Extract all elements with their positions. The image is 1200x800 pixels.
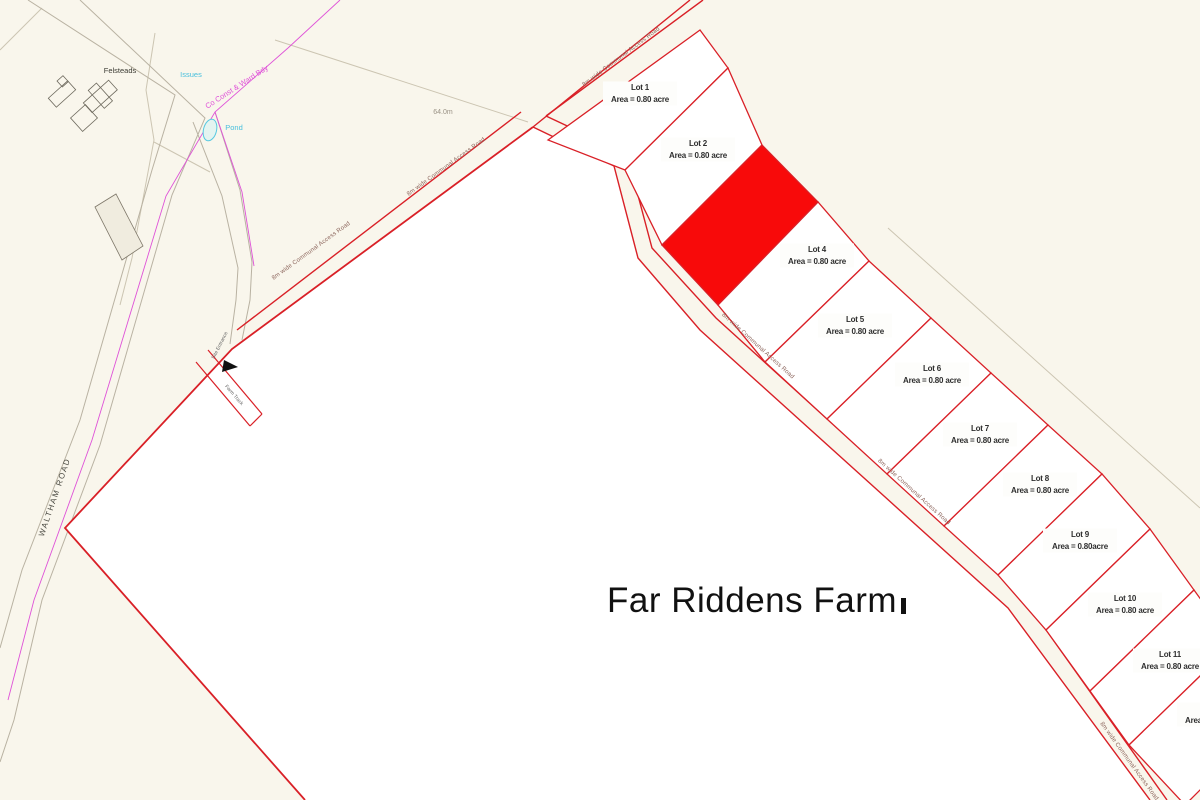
spot-height-label: 64.0m [433, 109, 453, 116]
lot-4-label: Lot 4 Area = 0.80 acre [780, 244, 854, 268]
lot-area: Area = 0.80 acre [1185, 716, 1200, 725]
lot-area: Area = 0.80 acre [951, 436, 1010, 445]
lot-area: Area = 0.80 acre [788, 257, 847, 266]
lot-name: Lot 10 [1114, 594, 1137, 603]
farm-title-label: Far Riddens Farm [607, 581, 897, 620]
lot-7-label: Lot 7 Area = 0.80 acre [943, 423, 1017, 447]
lot-name: Lot 7 [971, 424, 990, 433]
lot-10-label: Lot 10 Area = 0.80 acre [1088, 593, 1162, 617]
map-mark [901, 598, 906, 614]
site-plan-map: Felsteads Issues Pond Co Const & Ward Bd… [0, 0, 1200, 800]
lot-name: Lot 6 [923, 364, 942, 373]
lot-11-label: Lot 11 Area = 0.80 acre [1133, 649, 1200, 673]
lot-6-label: Lot 6 Area = 0.80 acre [895, 363, 969, 387]
lot-name: Lot 1 [631, 83, 650, 92]
lot-area: Area = 0.80acre [1052, 542, 1109, 551]
felsteads-label: Felsteads [104, 66, 137, 75]
lot-name: Lot 2 [689, 139, 708, 148]
lot-2-label: Lot 2 Area = 0.80 acre [661, 138, 735, 162]
lot-area: Area = 0.80 acre [669, 151, 728, 160]
issues-label: Issues [180, 70, 202, 79]
lot-area: Area = 0.80 acre [826, 327, 885, 336]
lot-name: Lot 5 [846, 315, 865, 324]
lot-5-label: Lot 5 Area = 0.80 acre [818, 314, 892, 338]
lot-area: Area = 0.80 acre [1011, 486, 1070, 495]
lot-12-label-partial: Area = 0.80 acre [1177, 703, 1200, 727]
lot-name: Lot 11 [1159, 650, 1182, 659]
lot-area: Area = 0.80 acre [1141, 662, 1200, 671]
lot-area: Area = 0.80 acre [611, 95, 670, 104]
lot-area: Area = 0.80 acre [903, 376, 962, 385]
lot-area: Area = 0.80 acre [1096, 606, 1155, 615]
lot-8-label: Lot 8 Area = 0.80 acre [1003, 473, 1077, 497]
lot-name: Lot 9 [1071, 530, 1090, 539]
lot-name: Lot 8 [1031, 474, 1050, 483]
pond-label: Pond [225, 123, 243, 132]
lot-1-label: Lot 1 Area = 0.80 acre [603, 82, 677, 106]
lot-9-label: Lot 9 Area = 0.80acre [1043, 529, 1117, 553]
lot-name: Lot 4 [808, 245, 827, 254]
